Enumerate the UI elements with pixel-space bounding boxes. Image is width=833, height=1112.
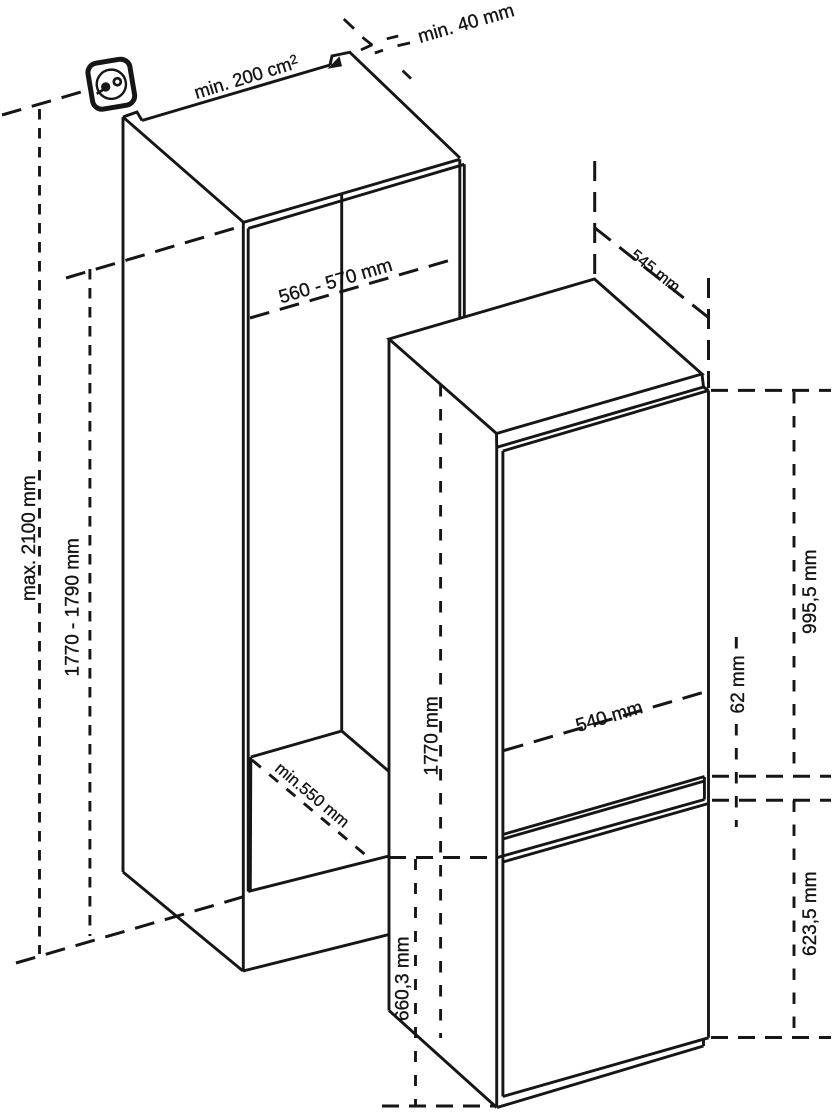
svg-text:995,5 mm: 995,5 mm	[800, 550, 821, 634]
svg-text:min. 40 mm: min. 40 mm	[416, 0, 517, 48]
svg-text:max. 2100 mm: max. 2100 mm	[19, 475, 40, 601]
svg-text:623,5 mm: 623,5 mm	[800, 872, 821, 956]
svg-text:1770 mm: 1770 mm	[422, 696, 443, 775]
svg-text:660,3 mm: 660,3 mm	[393, 937, 414, 1021]
svg-text:1770 - 1790 mm: 1770 - 1790 mm	[63, 538, 84, 676]
svg-text:540 mm: 540 mm	[573, 697, 645, 737]
svg-text:min.550 mm: min.550 mm	[271, 759, 352, 831]
svg-text:62 mm: 62 mm	[728, 655, 749, 713]
svg-text:545 mm: 545 mm	[627, 247, 683, 296]
